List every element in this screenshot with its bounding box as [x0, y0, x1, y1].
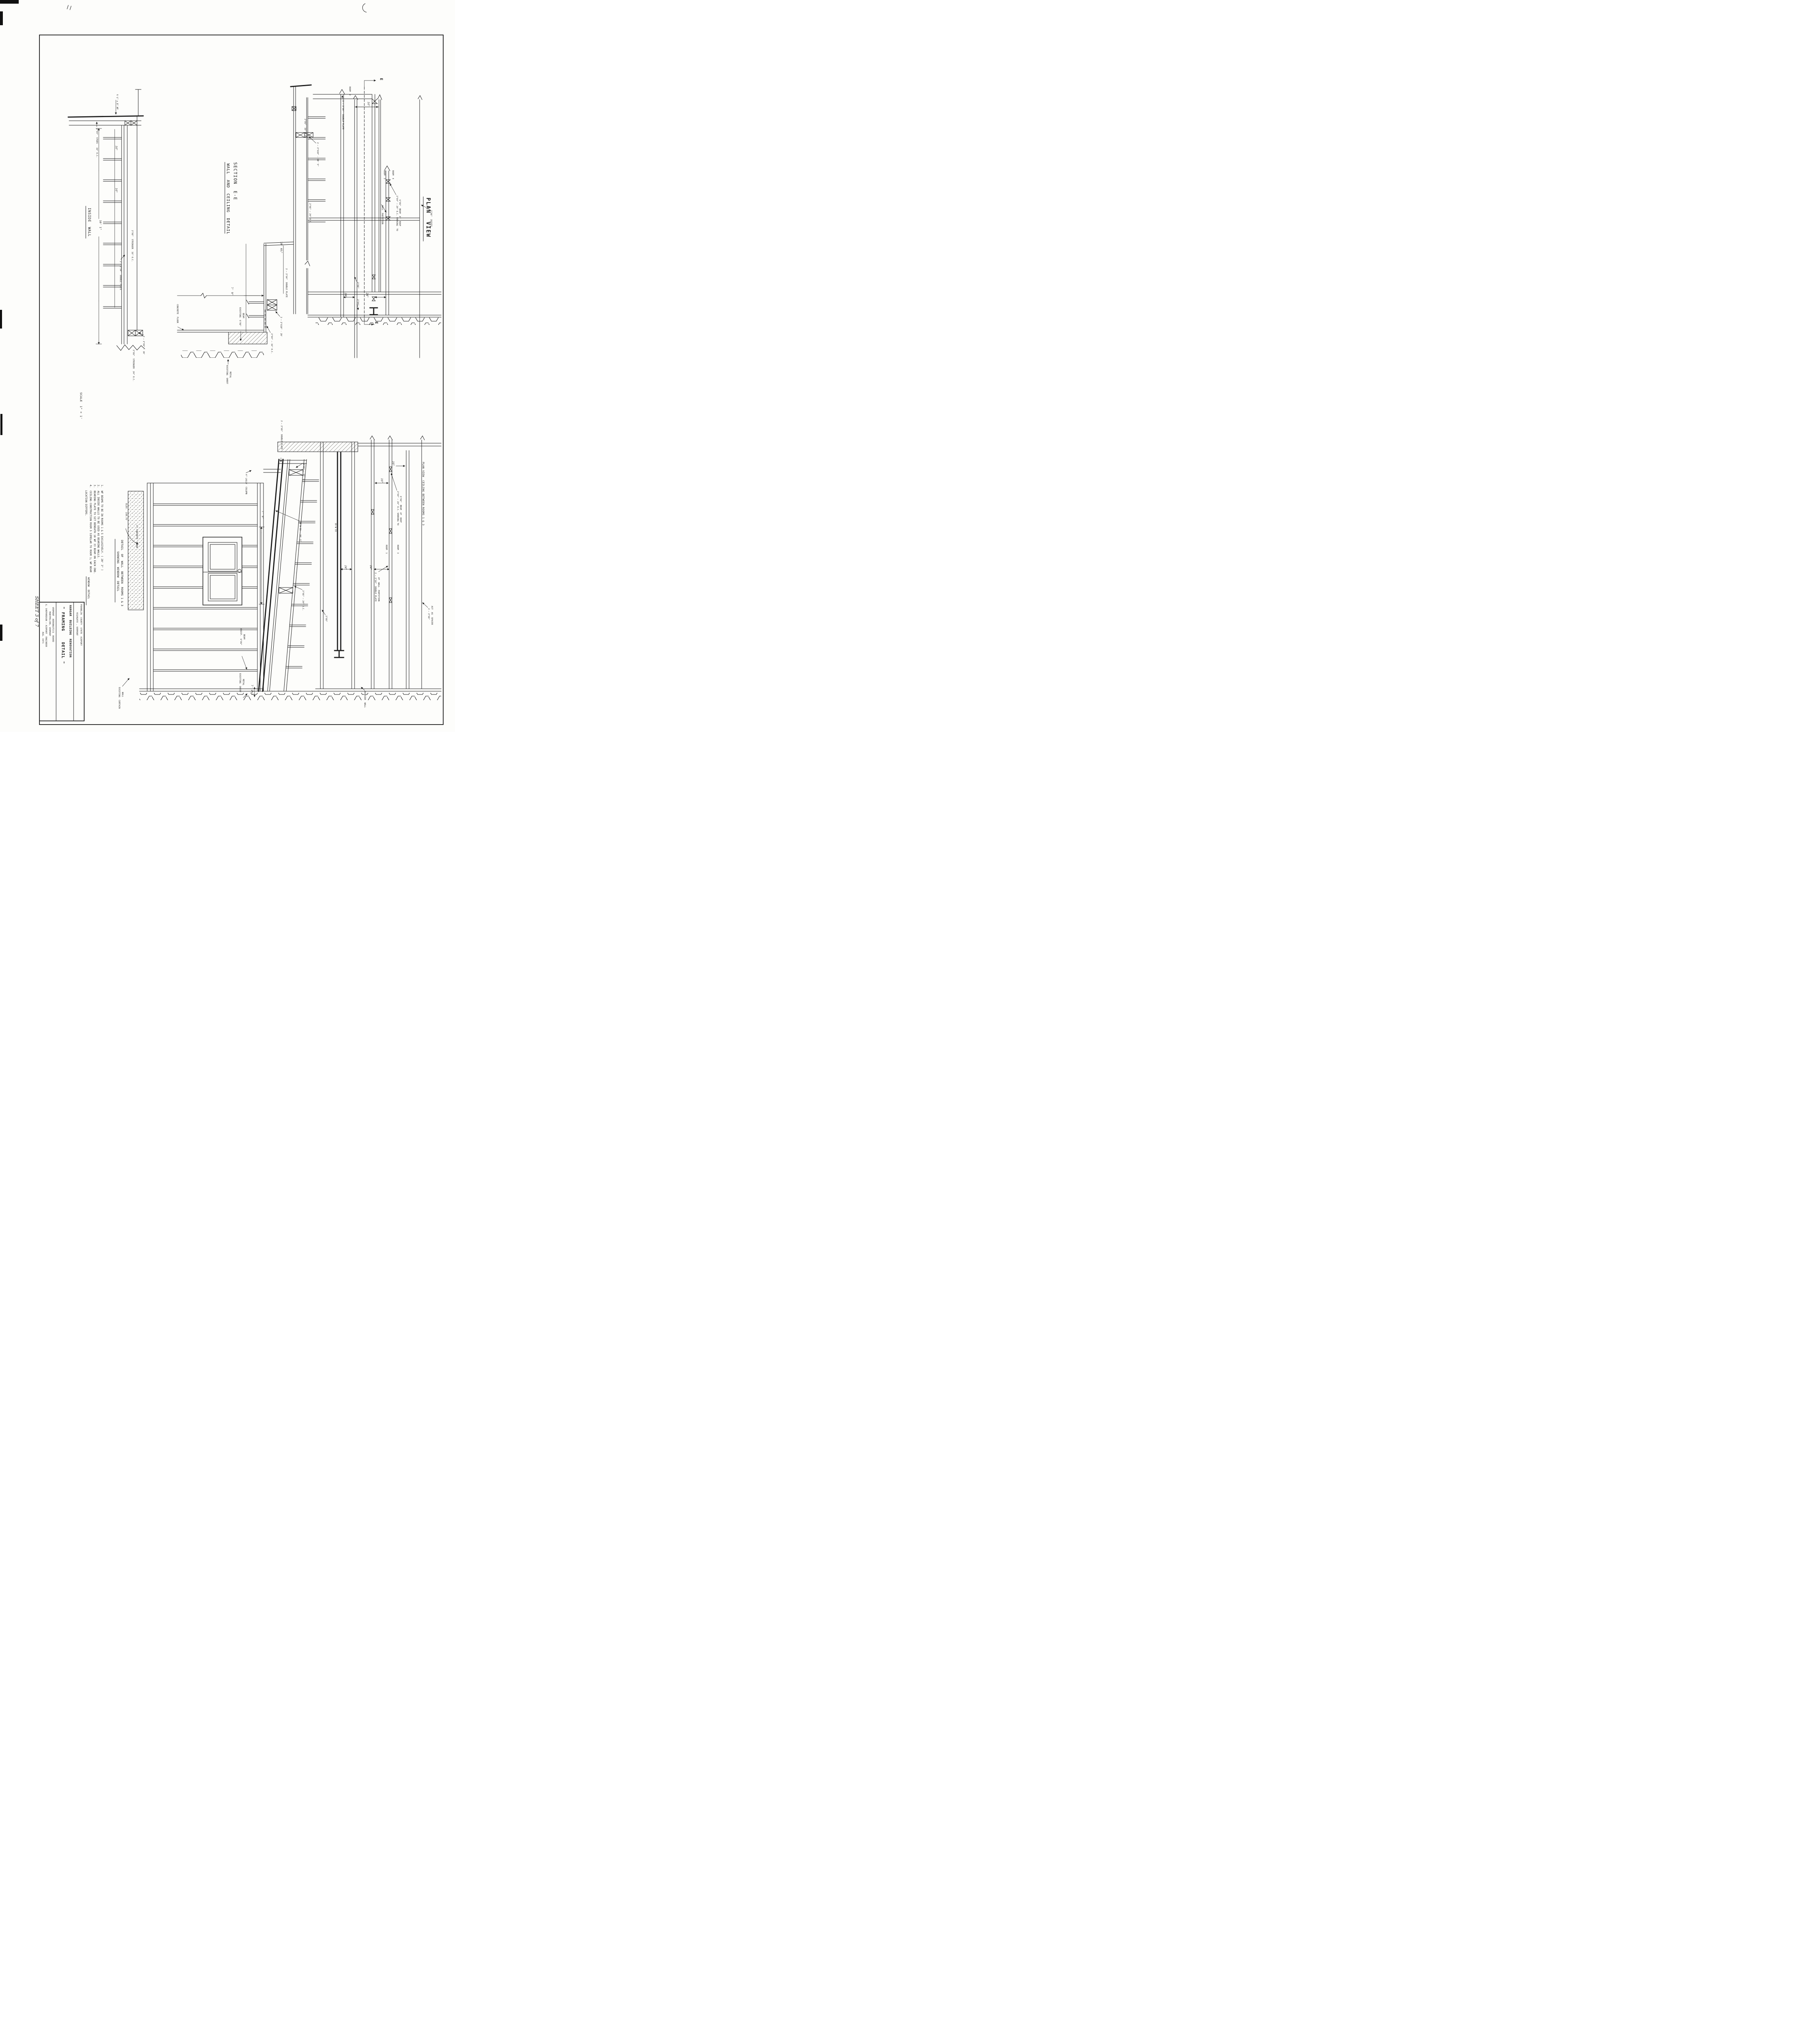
plan-view-detail: [308, 81, 441, 358]
pv-2x6-label: 2"X6": [357, 282, 359, 289]
note-1: 1. WF BEAMS TO BE IN ROOMS 1 & 5 EXCLUSI…: [100, 485, 103, 571]
wd-sheet-metal-l2: METAL: [242, 679, 244, 686]
spacer-l2: ACT AS SPACER: [431, 606, 433, 625]
concrete-4-label: 4" CONCRETE FLOOR: [135, 525, 137, 548]
note-2: 2. ALL INSIDE WALLS TO BE USED AS BEARIN…: [97, 485, 99, 559]
pc-dim24-a: 24": [344, 565, 347, 570]
note-4-cont: LOCATION DIFFERS.: [85, 490, 87, 516]
sheet-border: [39, 35, 443, 725]
sec-double-plate-label: 2 — 2"X4" DOUBLE PLATE: [285, 268, 287, 298]
room4-label: ROOM 4: [392, 170, 394, 179]
beam-10w33-label: 10 W 33 — 20' 5": [299, 522, 301, 542]
stringer24-label: 2"X6" STRINGER 24" O.C.: [132, 350, 134, 381]
studs-label: 2"X4" STUDS 16" O.C.: [96, 128, 98, 158]
pc-dim16-b: 16": [381, 478, 383, 483]
dim-10-1: 10' 1": [99, 220, 102, 230]
blocking-label: 2 — 2"X6" - 10': [142, 336, 144, 355]
sec-blocking20-label: 2 — 2"X10" - 20': [280, 317, 282, 337]
section-ee-title: SECTION E-E: [233, 162, 237, 200]
sec-exist-beam-l2: BEAM: [242, 313, 244, 318]
wd-double-plate: 2 — 2"X6" DOUBLE PLATE: [280, 420, 282, 450]
pv-shoring-l2: 6"X6" BEAM AT ROOF: [398, 200, 401, 226]
sec-stud-2x4-label: 2"X4" — 16" O.C.: [270, 333, 272, 354]
pv-dim24-a: 24": [344, 293, 347, 297]
scan-artifacts: [0, 0, 366, 641]
sec-exist-beam-l1: EXISTING 6"X6": [239, 307, 241, 326]
project-line2: " FRAMING DETAIL ": [61, 607, 65, 664]
curtain-wall-l1: EXISTING CURTAIN: [118, 687, 120, 709]
pv-shoring-l1: 2"X4" — 24" O.C. SHORING TO: [396, 196, 398, 231]
wall-partition-label: WALL PARTITION: [381, 205, 383, 224]
section-ee-detail: [177, 85, 325, 364]
wd-exist-beam-l1: EXIST. 6"X6": [239, 629, 242, 645]
window-detail-note: WINDOW DETAIL: [87, 577, 89, 599]
dim-16-b: 16": [115, 188, 118, 192]
engineer-line: G. SHEPARDSON — AIRPORT ENGINEER: [44, 604, 46, 647]
wd-joist16: 2"X6" — 16" O.C.: [303, 464, 305, 484]
blueprint-sheet: SHEET 3 of 7 SCALE 1" = 1' WINDOW DETAIL…: [0, 0, 455, 732]
wd-dim-7-9: 7' 9": [261, 511, 264, 519]
sec-joist24-label: 2"X6" — 24" O.C.: [309, 203, 311, 224]
wd-joist24: 2"X6" — 24" O.C.: [302, 590, 304, 611]
sec-blocking10-label: 2 — 2"X10" - 10' 5": [316, 142, 318, 166]
pc-shoring-l1: 2"X4" — 24" O.C. SHORING TO: [396, 491, 398, 525]
room3-label: ROOM 3: [383, 170, 385, 179]
room1-label: ROOM 1: [385, 545, 387, 554]
pc-dim24-b: 24": [370, 565, 372, 570]
wd-dim-7-2: 7' 2½": [251, 685, 254, 695]
scale-note: SCALE 1" = 1': [79, 392, 82, 419]
sec-dim-10-6: 10' 6½": [280, 242, 283, 253]
room2-label: ROOM 2: [348, 87, 351, 96]
pc-double-plate-l1: 2 — 2"X4" DOUBLE PLATE: [374, 572, 376, 602]
window-detail-title-l1: DETAIL OF WALL BETWEEN ROOMS 1 & 3: [120, 540, 123, 606]
sheet-number: SHEET 3 of 7: [35, 596, 39, 627]
project-line1: HANGAR BUILDING RENOVATION: [69, 605, 72, 657]
client-line1: FRANKLIN COUNTY STATE AIRPORT: [79, 604, 81, 646]
date-line: AUG. 1971: [41, 632, 43, 644]
wf-beam-label: 6 ½" x 8" WF: [116, 94, 118, 109]
elev-label: ELEV. 230.75': [125, 503, 127, 521]
concrete-floor-label: CONCRETE FLOOR: [176, 304, 178, 323]
wd-sheet-metal-l1: EXISTING SHEET: [239, 673, 241, 692]
pv-2x4-label: 2"X4": [357, 299, 359, 306]
pc-shoring-l2: 6"X6" BEAM AT ROOF: [399, 496, 401, 522]
lally-column-label: 4" LALLY COLUMN: [245, 474, 247, 494]
note-4: 4. CEILING CONSTRUCTION ROOM 5 SIMILAR T…: [89, 485, 91, 572]
sec-joist16-label: 2"X6" 16" O.C.: [304, 119, 306, 138]
note-3: 3. BEARING PLATE TO SIT BENEATH 10 WF 33…: [93, 485, 96, 574]
plan-ceiling-title: PLAN VIEW CEILING BETWEEN ROOMS 1 & 3: [422, 462, 425, 525]
pv-double-plate: 2 — 2"X4" DOUBLE PLATE: [342, 100, 344, 130]
pc-double-plate-l2: AT WALL PARTITION: [377, 577, 379, 601]
sec-sheet-metal-l1: EXISTING SHEET: [226, 365, 228, 384]
agency-line2: MONTPELIER, VERMONT: [48, 612, 50, 636]
double-plate-label: 2 — 2"X4" DOUBLE PLATE: [119, 261, 121, 290]
client-line2: HIGHGATE , VERMONT: [75, 612, 77, 636]
wd-exist-beam-l2: BEAM: [243, 634, 245, 639]
sec-sheet-metal-l2: METAL: [229, 372, 231, 378]
section-marker-e-bottom: E: [374, 322, 378, 324]
inside-wall-detail: [68, 89, 145, 350]
window-detail-title-l2: SHOWING WINDOW DETAIL: [116, 551, 119, 592]
outside-wall-label: OUTSIDE WALL: [364, 691, 366, 707]
joists-label: 2"X6" JOISTS: [430, 210, 432, 226]
pv-dim16: 16": [367, 102, 370, 106]
sec-dim-7-9: 7' 9": [231, 287, 234, 296]
stringer16-label: 2"X6" STRINGER 16" O.C.: [131, 230, 133, 262]
pc-2x6-label: 2"X6": [325, 616, 327, 622]
agency-line1: VERMONT AERONAUTICS BOARD: [51, 607, 53, 642]
section-marker-e-top: E: [379, 78, 383, 80]
pv-dim24-b: 24": [366, 293, 369, 297]
dim-16-a: 16": [115, 146, 118, 150]
curtain-wall-l2: WALL: [121, 692, 123, 697]
pc-dim16-a: 16": [392, 461, 395, 466]
pc-beam-label: 10 W 33: [334, 523, 336, 532]
inside-wall-title: INSIDE WALL: [87, 208, 91, 237]
section-ee-subtitle: WALL AND CEILING DETAIL: [226, 163, 230, 235]
pc-room3-label: ROOM 3: [396, 545, 398, 554]
spacer-l1: 2 — 2"X6": [427, 608, 429, 620]
